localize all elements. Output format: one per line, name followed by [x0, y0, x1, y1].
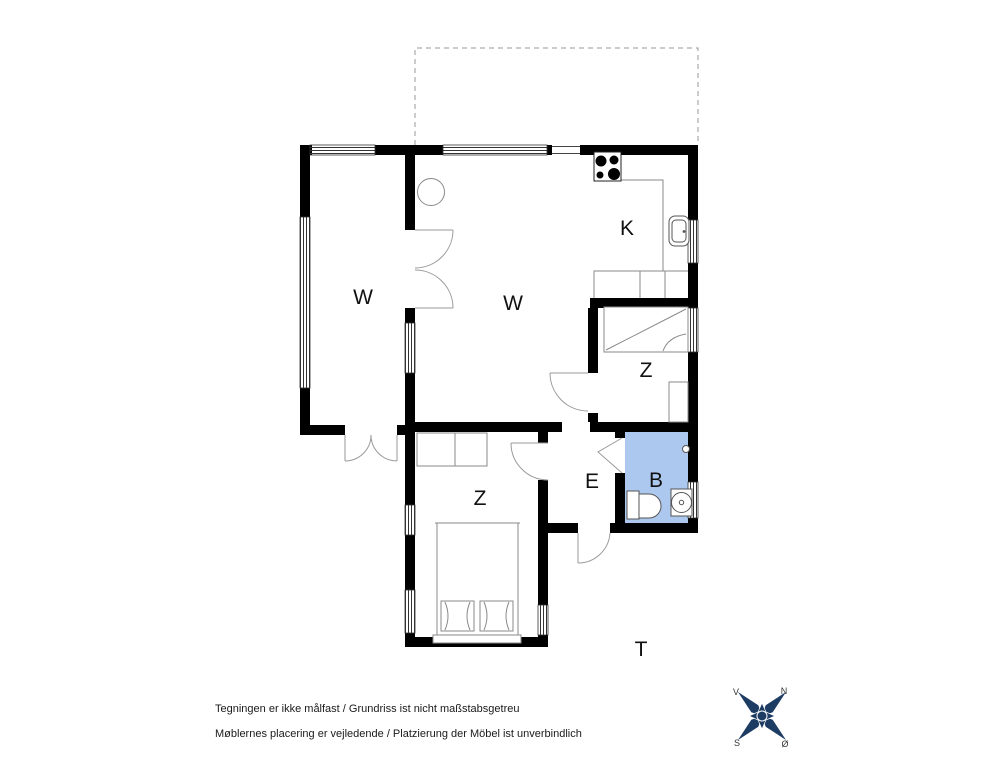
patio-double-door: [345, 435, 397, 461]
wall-segment: [615, 473, 625, 523]
burner: [608, 168, 620, 180]
doors: [345, 230, 622, 563]
burner: [610, 156, 619, 165]
label-bedroom-lower: Z: [474, 487, 487, 510]
compass-center: [757, 711, 767, 721]
wall-segment: [688, 145, 698, 220]
wall-segment: [538, 533, 548, 605]
wardrobe-upper: [669, 382, 688, 422]
wall-segment: [405, 145, 415, 230]
window: [405, 323, 415, 373]
door-bedroom-upper: [550, 373, 588, 411]
bed-double-lower: [433, 523, 521, 643]
door-handle-dot: [683, 446, 690, 453]
window: [538, 605, 548, 635]
compass-letter-v: V: [733, 687, 739, 697]
kitchen-cabinets: [594, 271, 688, 298]
wall-segment: [547, 145, 552, 155]
wall-segment: [610, 523, 698, 533]
round-table: [418, 179, 445, 206]
kitchen-sink: [669, 216, 689, 246]
burner: [597, 172, 604, 179]
burner: [596, 156, 607, 167]
wall-segment: [615, 427, 625, 438]
window: [405, 505, 415, 535]
wall-segment: [590, 422, 698, 432]
label-kitchen: K: [620, 217, 634, 240]
window: [300, 217, 310, 388]
label-bedroom-upper: Z: [640, 359, 653, 382]
window: [443, 145, 547, 155]
window: [688, 308, 698, 352]
wall-segment: [688, 518, 698, 533]
label-terrace: T: [635, 638, 648, 661]
label-bathroom: B: [649, 469, 663, 492]
wall-segment: [300, 155, 310, 217]
double-door-living: [415, 230, 453, 308]
window: [405, 590, 415, 633]
compass-rose: V N S Ø: [733, 686, 789, 749]
door-bedroom-lower: [511, 443, 548, 480]
compass-letter-n: N: [781, 686, 788, 696]
label-entrance: E: [585, 470, 599, 493]
bed-footboard: [433, 635, 521, 643]
door-bathroom: [598, 438, 622, 473]
wall-segment: [588, 308, 598, 373]
wall-segment: [688, 263, 698, 308]
wall-opening-lines: [552, 147, 580, 154]
disclaimer-furniture: Møblernes placering er vejledende / Plat…: [215, 728, 582, 740]
wall-segment: [688, 352, 698, 482]
furniture: [417, 179, 688, 644]
terrace-dashed-outline: [415, 48, 698, 145]
front-door: [578, 533, 610, 563]
wall-segment: [405, 373, 415, 505]
kitchen-fixtures: [594, 152, 689, 298]
floor-plan: W W K Z Z E B T V N S Ø: [0, 0, 992, 776]
compass-letter-s: S: [734, 738, 740, 748]
wall-segment: [405, 535, 415, 590]
bathroom-sink: [671, 489, 692, 516]
compass-letter-o: Ø: [781, 739, 788, 749]
label-living-room-main: W: [503, 292, 523, 315]
wall-segment: [405, 308, 415, 323]
wall-segment: [300, 425, 345, 435]
bed-single-upper: [604, 307, 688, 352]
window: [310, 145, 375, 155]
stove: [594, 152, 621, 181]
disclaimer-scale: Tegningen er ikke målfast / Grundriss is…: [215, 703, 519, 715]
closet-lower: [417, 433, 487, 466]
wall-segment: [588, 413, 598, 422]
wall-segment: [405, 422, 562, 432]
wall-segment: [538, 635, 548, 647]
label-living-room-left: W: [353, 286, 373, 309]
wall-segment: [542, 523, 578, 533]
